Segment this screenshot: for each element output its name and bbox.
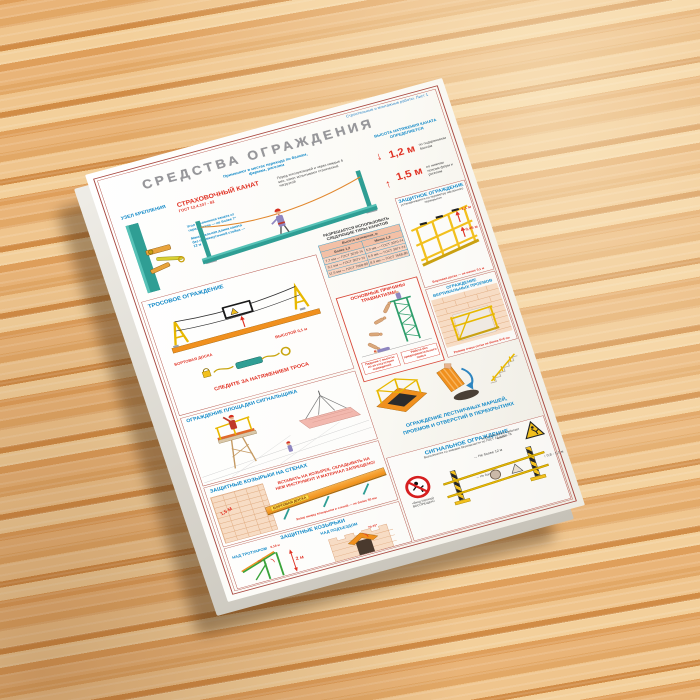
rope-height-1: 1,2 м: [387, 143, 416, 161]
canopy-strut: [283, 508, 290, 519]
rope-height-2-note: по нижним поясам ферм и ригелям: [425, 157, 458, 176]
down-arrow-icon: ↓: [374, 149, 384, 163]
canopy-strut: [323, 496, 330, 507]
canopy-strut: [363, 483, 370, 494]
rope-height-1-note: по подкрановым балкам: [418, 135, 450, 151]
rope-height-2: 1,5 м: [395, 165, 424, 183]
post-base: [530, 474, 546, 481]
stair-rail-illustration: [478, 343, 530, 393]
hatch-door-illustration: [428, 353, 487, 409]
up-arrow-icon: ↑: [383, 177, 393, 191]
post-base: [455, 498, 471, 505]
photo-scene: Строительные и монтажные работы. Лист 1 …: [0, 0, 700, 700]
